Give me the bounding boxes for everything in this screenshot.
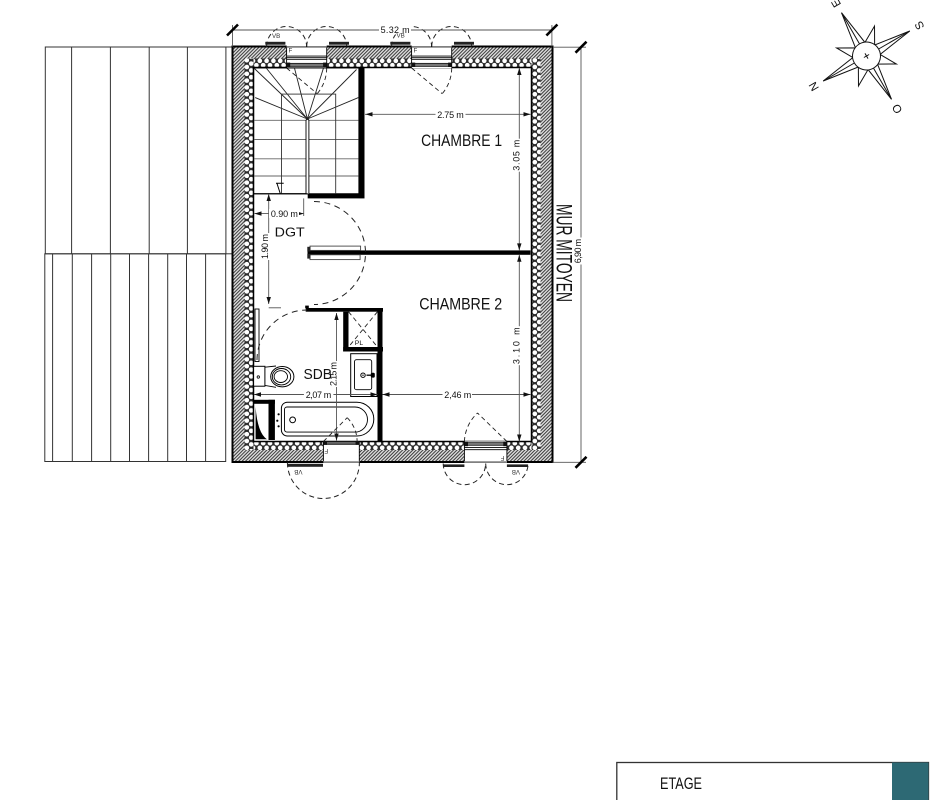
svg-text:0.90 m: 0.90 m [271,209,298,219]
svg-text:2.75 m: 2.75 m [437,110,464,120]
svg-text:ETAGE: ETAGE [660,774,702,793]
svg-text:5.32 m: 5.32 m [381,25,410,35]
svg-text:CHAMBRE 1: CHAMBRE 1 [421,132,502,150]
svg-text:VB: VB [512,468,520,475]
svg-text:3.05 m: 3.05 m [511,140,521,171]
svg-text:VB: VB [397,33,405,40]
svg-text:MUR MITOYEN: MUR MITOYEN [552,204,577,302]
svg-text:PL: PL [355,340,364,347]
svg-text:F: F [501,454,505,461]
svg-text:F: F [324,447,328,454]
svg-text:F: F [289,48,293,55]
svg-text:SDB: SDB [304,366,333,383]
svg-text:2,46 m: 2,46 m [444,390,471,400]
svg-text:F: F [414,48,418,55]
svg-text:2,07 m: 2,07 m [306,390,332,400]
svg-text:VB: VB [272,33,280,40]
svg-text:1.90 m: 1.90 m [260,234,270,259]
svg-text:DGT: DGT [275,224,305,239]
svg-text:VB: VB [294,468,302,475]
svg-text:CHAMBRE 2: CHAMBRE 2 [419,296,502,314]
